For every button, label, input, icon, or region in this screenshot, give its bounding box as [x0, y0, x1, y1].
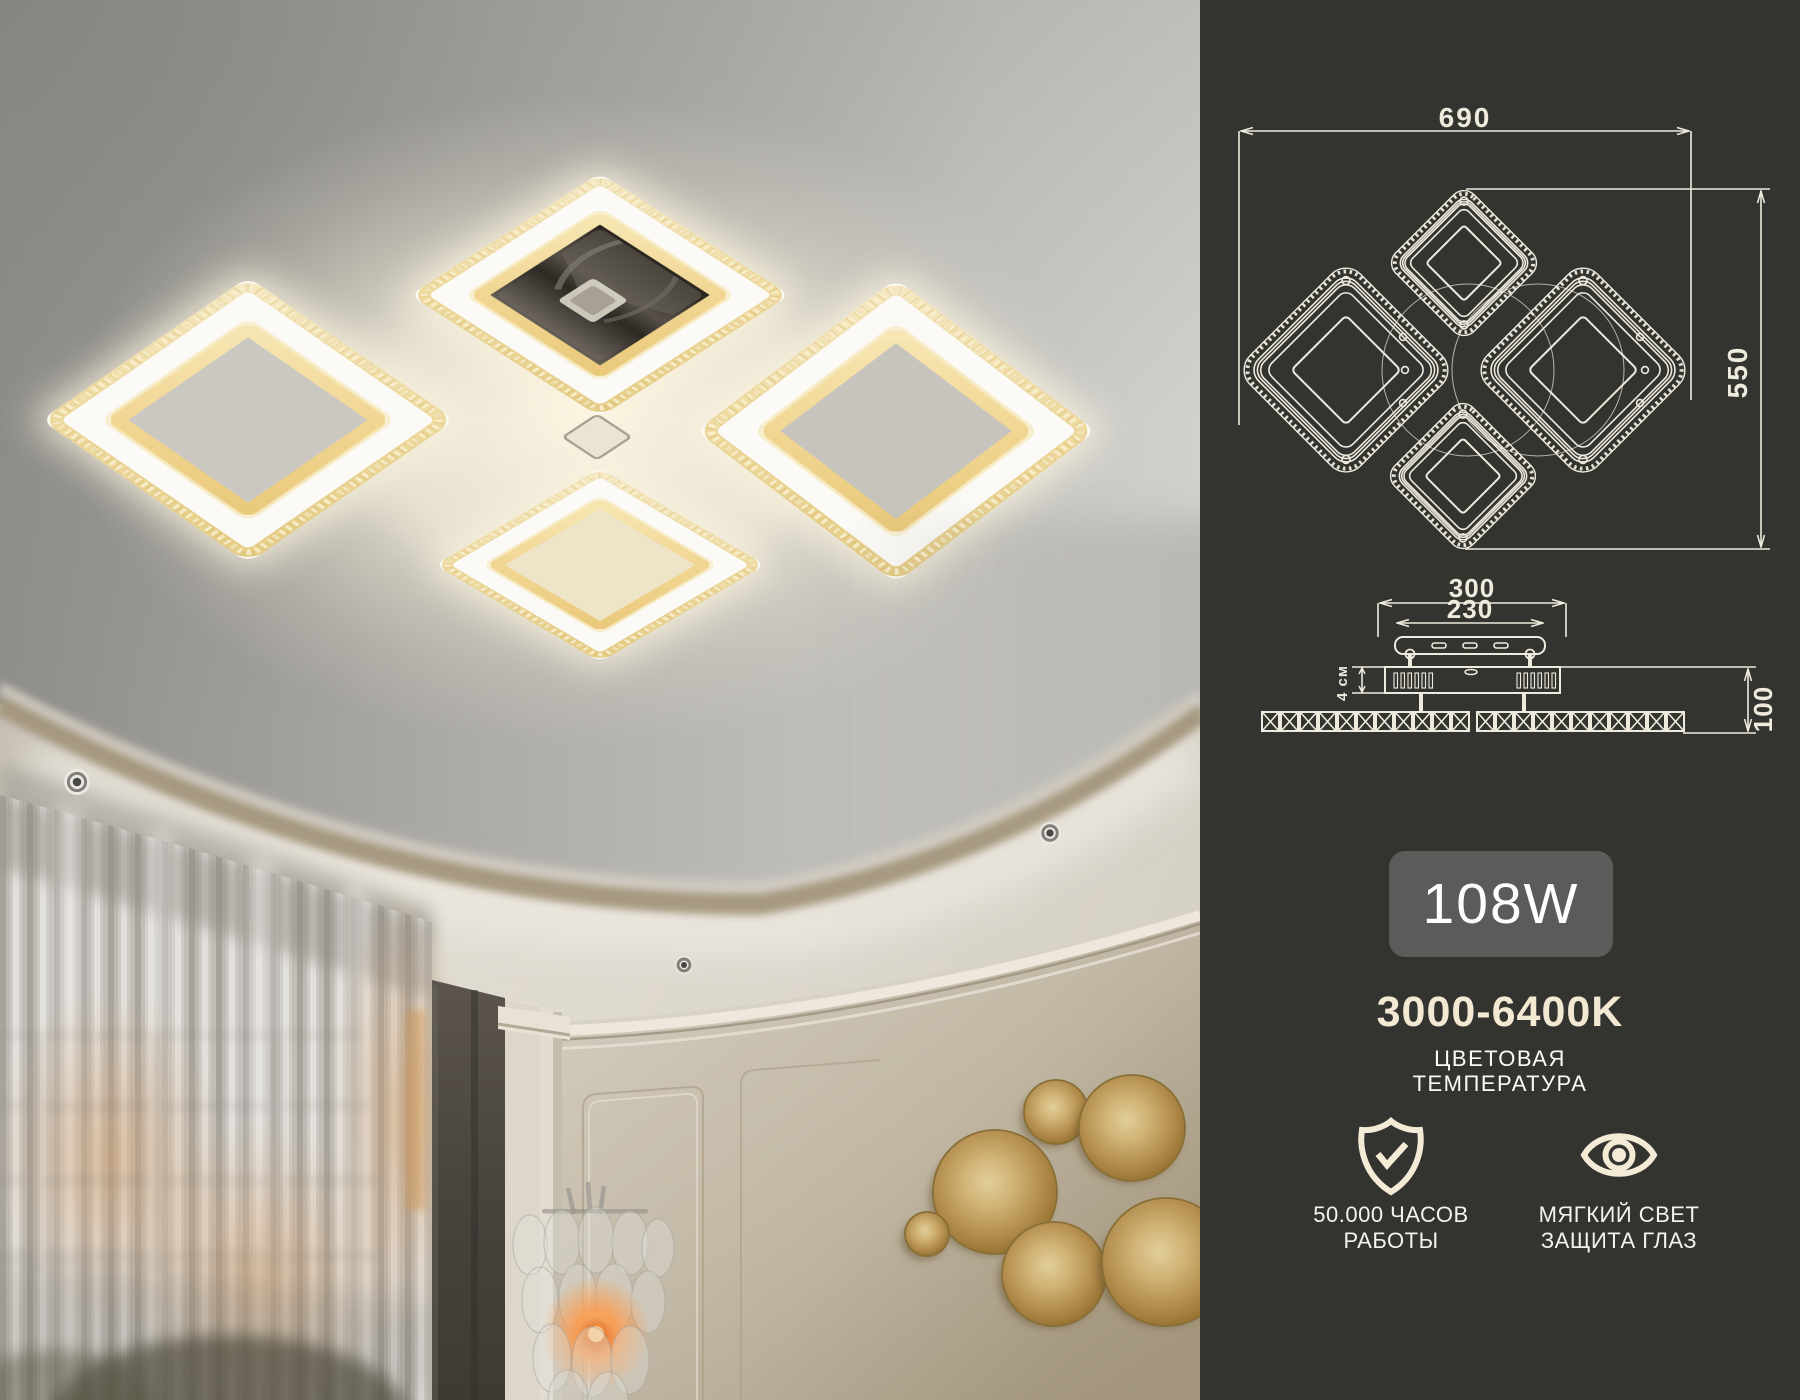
svg-text:690: 690 — [1439, 102, 1492, 133]
svg-text:550: 550 — [1722, 346, 1753, 399]
svg-text:230: 230 — [1447, 594, 1493, 624]
svg-text:4 см: 4 см — [1334, 665, 1351, 701]
svg-text:100: 100 — [1748, 686, 1778, 732]
